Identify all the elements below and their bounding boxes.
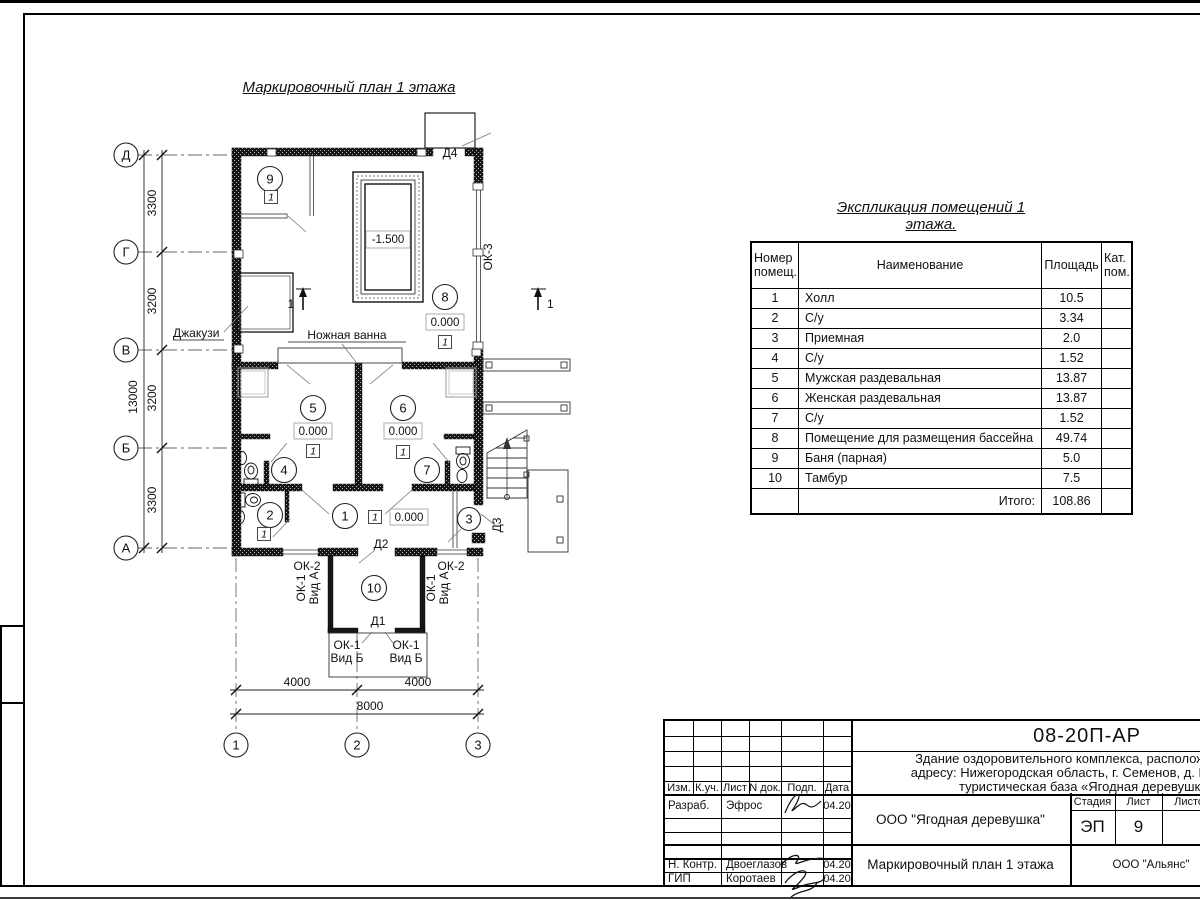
staff-name-efros: Эфрос xyxy=(723,794,784,818)
axis-row-b: Б xyxy=(122,441,131,456)
window-ok2-left-label: ОК-2 xyxy=(294,559,321,573)
benches xyxy=(483,359,570,414)
table-row: 8Помещение для размещения бассейна49.74 xyxy=(751,428,1132,448)
foot-bath-label: Ножная ванна xyxy=(307,328,387,342)
door-d4-label: Д4 xyxy=(443,146,458,160)
room-9-number: 9 xyxy=(266,172,273,187)
axis-row-a: А xyxy=(122,541,131,556)
room-6-number: 6 xyxy=(399,401,406,416)
floor-marker: 1 xyxy=(372,512,378,524)
staff-role-gip: ГИП xyxy=(665,872,724,885)
room-5-number: 5 xyxy=(309,401,316,416)
window-ok1-vida-left2: Вид А xyxy=(307,571,321,604)
explication-table: Номерпомещ. Наименование Площадь Кат.пом… xyxy=(750,241,1133,515)
doc-number: 08-20П-АР xyxy=(851,721,1200,751)
swimming-pool: -1.500 xyxy=(353,172,423,302)
plan-labels: Джакузи Ножная ванна Д4 Д2 Д1 Д3 ОК-3 ОК… xyxy=(173,146,504,665)
staff-role-nkontr: Н. Контр. xyxy=(665,858,724,872)
level-0-room6: 0.000 xyxy=(389,426,418,438)
col-area: Площадь xyxy=(1042,242,1102,288)
table-header-row: Номерпомещ. Наименование Площадь Кат.пом… xyxy=(751,242,1132,288)
door-d2-label: Д2 xyxy=(374,537,389,551)
room-4-number: 4 xyxy=(280,463,287,478)
floor-plan: -1.500 xyxy=(20,60,660,790)
dim-3300-bottom: 3300 xyxy=(145,486,159,513)
sheet-label: Лист xyxy=(1115,794,1162,810)
table-row: 3Приемная2.0 xyxy=(751,328,1132,348)
window-ok1-vidb-right: ОК-1 xyxy=(393,638,420,652)
project-address: Здание оздоровительного комплекса, распо… xyxy=(851,752,1200,794)
col-name: Наименование xyxy=(799,242,1042,288)
floor-marker: 1 xyxy=(310,446,316,458)
axis-col-3: 3 xyxy=(474,738,481,753)
table-row: 1Холл10.5 xyxy=(751,288,1132,308)
dim-3200-b: 3200 xyxy=(145,384,159,411)
title-block: Изм. К.уч. Лист N док. Подп. Дата Разраб… xyxy=(663,719,1200,887)
doc-title: Маркировочный план 1 этажа xyxy=(851,844,1070,885)
floor-marker: 1 xyxy=(261,529,267,541)
axis-row-d: Д xyxy=(122,148,131,163)
col-number: Номерпомещ. xyxy=(751,242,799,288)
table-row: 5Мужская раздевальная13.87 xyxy=(751,368,1132,388)
door-d1-label: Д1 xyxy=(371,614,386,628)
col-izm: Изм. xyxy=(665,781,693,794)
window-ok2-right-label: ОК-2 xyxy=(438,559,465,573)
room-7-number: 7 xyxy=(423,463,430,478)
company-name: ООО "Ягодная деревушка" xyxy=(851,794,1070,844)
floor-marker: 1 xyxy=(268,192,274,204)
col-category: Кат.пом. xyxy=(1102,242,1132,288)
staircase xyxy=(487,430,568,552)
dim-3300-top: 3300 xyxy=(145,189,159,216)
door-d3-label: Д3 xyxy=(490,517,504,532)
frame-top xyxy=(23,13,1200,15)
foot-bath xyxy=(278,348,402,363)
col-data: Дата xyxy=(823,781,851,794)
window-ok3-label: ОК-3 xyxy=(481,243,495,270)
total-label: Итого: xyxy=(799,488,1042,514)
dim-8000: 8000 xyxy=(357,699,384,713)
dim-3200-a: 3200 xyxy=(145,287,159,314)
room-3-number: 3 xyxy=(465,512,472,527)
drawing-sheet: Маркировочный план 1 этажа xyxy=(0,0,1200,900)
signature-nkontr-gip xyxy=(777,849,831,900)
table-row: 9Баня (парная)5.0 xyxy=(751,448,1132,468)
sheets-label: Листов xyxy=(1162,794,1200,810)
level-0-room5: 0.000 xyxy=(299,426,328,438)
level-0-room8: 0.000 xyxy=(431,317,460,329)
axis-row-g: Г xyxy=(122,245,129,260)
col-list: Лист xyxy=(721,781,749,794)
stage-value: ЭП xyxy=(1070,810,1115,844)
org-name: ООО "Альянс" xyxy=(1070,844,1200,885)
paper-bottom-edge xyxy=(0,897,1200,899)
signature-razrab xyxy=(783,789,825,821)
table-row: 4С/у1.52 xyxy=(751,348,1132,368)
dim-13000: 13000 xyxy=(126,380,140,414)
staff-role-razrab: Разраб. xyxy=(665,794,724,818)
floor-marker: 1 xyxy=(400,447,406,459)
col-kuch: К.уч. xyxy=(693,781,721,794)
dim-4000-left: 4000 xyxy=(284,675,311,689)
pool-level-label: -1.500 xyxy=(372,234,405,246)
section-mark-1-right: 1 xyxy=(547,297,554,311)
window-ok1-vida-right2: Вид А xyxy=(437,571,451,604)
room-1-number: 1 xyxy=(341,509,348,524)
floor-marker: 1 xyxy=(442,337,448,349)
window-ok1-vida-left: ОК-1 xyxy=(294,574,308,601)
stage-label: Стадия xyxy=(1070,794,1115,810)
entrance-porch-top xyxy=(425,113,475,148)
window-ok1-vidb-right2: Вид Б xyxy=(390,651,423,665)
level-0-hall: 0.000 xyxy=(395,512,424,524)
table-row: 10Тамбур7.5 xyxy=(751,468,1132,488)
axis-grid: Д Г В Б А 1 2 3 3300 3200 3200 3300 1300… xyxy=(114,143,490,757)
frame-left-cells-edge xyxy=(0,625,2,887)
toilet-room7 xyxy=(456,447,470,483)
total-value: 108.86 xyxy=(1042,488,1102,514)
table-row: 6Женская раздевальная13.87 xyxy=(751,388,1132,408)
jacuzzi-label: Джакузи xyxy=(173,326,219,340)
axis-row-v: В xyxy=(122,343,131,358)
room-2-number: 2 xyxy=(266,508,273,523)
room-10-number: 10 xyxy=(367,581,381,596)
table-row: 2С/у3.34 xyxy=(751,308,1132,328)
col-ndok: N док. xyxy=(749,781,781,794)
axis-col-2: 2 xyxy=(353,738,360,753)
axis-col-1: 1 xyxy=(232,738,239,753)
sheet-number: 9 xyxy=(1115,810,1162,844)
dim-4000-right: 4000 xyxy=(405,675,432,689)
window-ok1-vida-right: ОК-1 xyxy=(424,574,438,601)
window-ok1-vidb-left2: Вид Б xyxy=(331,651,364,665)
jacuzzi xyxy=(237,273,293,332)
section-mark-1-left: 1 xyxy=(288,297,295,311)
window-ok1-vidb-left: ОК-1 xyxy=(334,638,361,652)
paper-top-edge xyxy=(0,0,1200,3)
table-row: 7С/у1.52 xyxy=(751,408,1132,428)
section-marks: 1 1 xyxy=(288,287,554,311)
staff-date-razrab: 04.20 xyxy=(823,794,851,818)
explication-title: Экспликация помещений 1 этажа. xyxy=(811,199,1051,233)
table-total-row: Итого: 108.86 xyxy=(751,488,1132,514)
room-8-number: 8 xyxy=(441,290,448,305)
